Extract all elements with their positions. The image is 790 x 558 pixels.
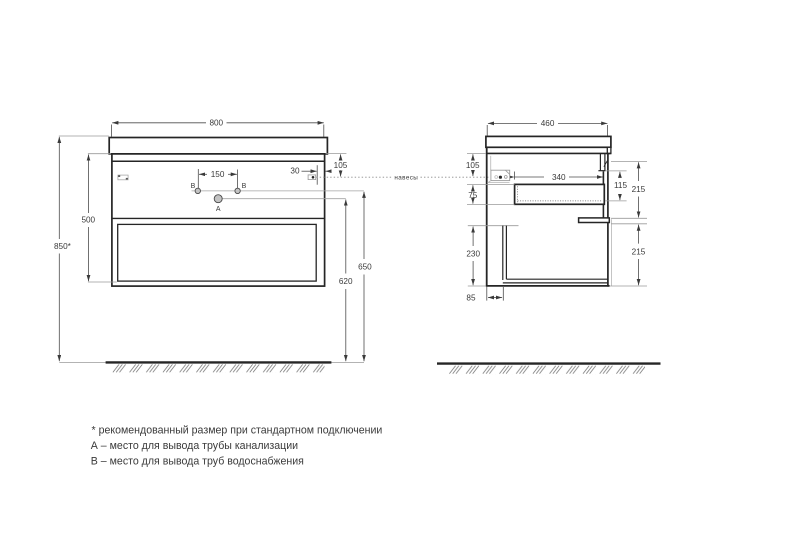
svg-text:150: 150 [211, 170, 225, 179]
svg-text:620: 620 [339, 277, 353, 286]
svg-text:115: 115 [614, 181, 627, 190]
svg-text:500: 500 [81, 216, 95, 225]
svg-text:215: 215 [632, 185, 646, 194]
svg-text:75: 75 [468, 191, 478, 200]
svg-text:850*: 850* [54, 242, 72, 251]
svg-text:В – место для вывода труб водо: В – место для вывода труб водоснабжения [91, 456, 304, 468]
svg-text:215: 215 [632, 247, 646, 256]
svg-text:B: B [191, 183, 196, 190]
svg-text:105: 105 [334, 161, 348, 170]
svg-text:230: 230 [466, 250, 480, 259]
svg-text:* рекомендованный размер при с: * рекомендованный размер при стандартном… [92, 424, 383, 436]
svg-text:B: B [242, 183, 247, 190]
svg-text:навесы: навесы [394, 175, 418, 182]
svg-text:340: 340 [552, 173, 566, 182]
svg-text:800: 800 [209, 119, 223, 128]
svg-text:460: 460 [541, 119, 555, 128]
svg-text:A: A [216, 206, 221, 213]
svg-text:105: 105 [466, 161, 480, 170]
svg-text:85: 85 [466, 293, 476, 302]
svg-text:А – место для вывода трубы кан: А – место для вывода трубы канализации [91, 440, 298, 452]
svg-text:650: 650 [358, 263, 372, 272]
svg-text:30: 30 [290, 167, 300, 176]
